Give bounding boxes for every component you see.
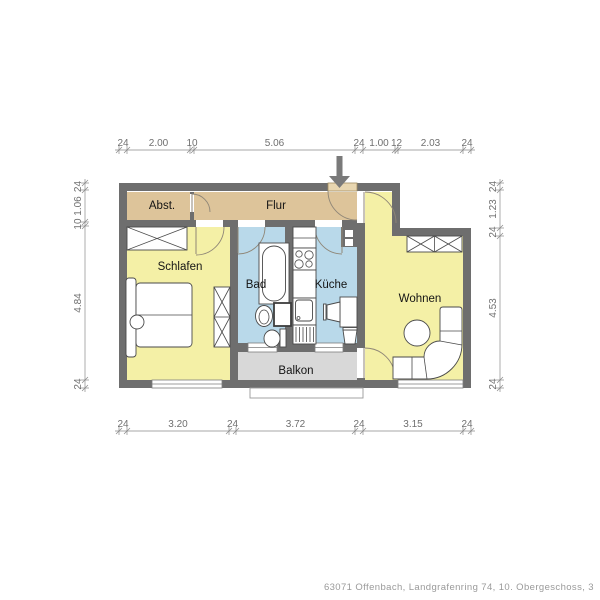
room-label-balkon: Balkon — [278, 365, 313, 377]
dim-label: 24 — [353, 419, 365, 430]
dim-label: 24 — [117, 419, 129, 430]
dim-label: 24 — [227, 419, 239, 430]
wardrobe-schlafen-top — [127, 227, 187, 250]
dim-label: 24 — [73, 181, 84, 193]
dim-label: 3.72 — [286, 419, 306, 430]
dim-label: 3.20 — [168, 419, 188, 430]
caption: 63071 Offenbach, Landgrafenring 74, 10. … — [324, 582, 594, 593]
drainboard — [293, 325, 316, 344]
dim-label: 24 — [73, 378, 84, 390]
room-label-wohnen: Wohnen — [399, 293, 442, 305]
dim-label: 10 — [73, 218, 84, 230]
floor-plan-page: 242.00105.06241.00122.0324243.20243.7224… — [0, 0, 600, 600]
bathtub — [259, 243, 289, 304]
round-table — [404, 320, 430, 346]
dim-label: 3.15 — [403, 419, 423, 430]
floor-plan: 242.00105.06241.00122.0324243.20243.7224… — [0, 0, 600, 600]
dim-label: 24 — [117, 138, 129, 149]
wardrobe-wohnen — [407, 236, 462, 252]
dim-label: 10 — [186, 138, 198, 149]
toilet — [264, 329, 286, 347]
washing-machine — [274, 303, 291, 326]
dim-label: 2.00 — [149, 138, 169, 149]
dim-label: 1.06 — [73, 196, 84, 216]
dim-label: 4.84 — [73, 293, 84, 313]
wardrobe-schlafen-side — [214, 287, 230, 347]
dim-label: 12 — [391, 138, 403, 149]
dim-label: 24 — [488, 181, 499, 193]
dim-label: 1.00 — [369, 138, 389, 149]
room-label-abst: Abst. — [149, 200, 175, 212]
double-bed — [126, 278, 192, 357]
washbasin — [256, 306, 273, 327]
room-label-schlafen: Schlafen — [158, 261, 203, 273]
dim-label: 24 — [461, 419, 473, 430]
stove — [293, 248, 316, 270]
dim-label: 24 — [461, 138, 473, 149]
dim-label: 2.03 — [421, 138, 441, 149]
balcony-slab — [250, 388, 363, 398]
dim-label: 5.06 — [265, 138, 285, 149]
dim-label: 24 — [488, 378, 499, 390]
dim-label: 1.23 — [488, 199, 499, 219]
room-label-flur: Flur — [266, 200, 286, 212]
room-label-kueche: Küche — [315, 279, 348, 291]
dim-label: 24 — [353, 138, 365, 149]
dim-label: 24 — [488, 226, 499, 238]
kitchen-counter — [293, 227, 316, 344]
room-label-bad: Bad — [246, 279, 266, 291]
dim-label: 4.53 — [488, 298, 499, 318]
